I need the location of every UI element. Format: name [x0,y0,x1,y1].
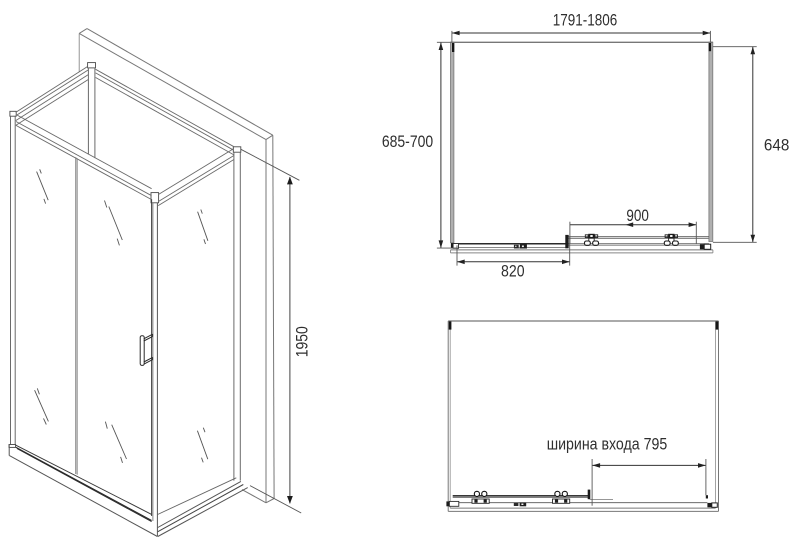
svg-text:1950: 1950 [292,326,311,357]
svg-text:648: 648 [764,137,789,155]
svg-text:1791-1806: 1791-1806 [553,11,618,29]
svg-text:820: 820 [501,263,525,281]
svg-text:685-700: 685-700 [382,133,433,151]
svg-text:900: 900 [626,207,649,225]
svg-text:ширина входа 795: ширина входа 795 [547,436,668,454]
